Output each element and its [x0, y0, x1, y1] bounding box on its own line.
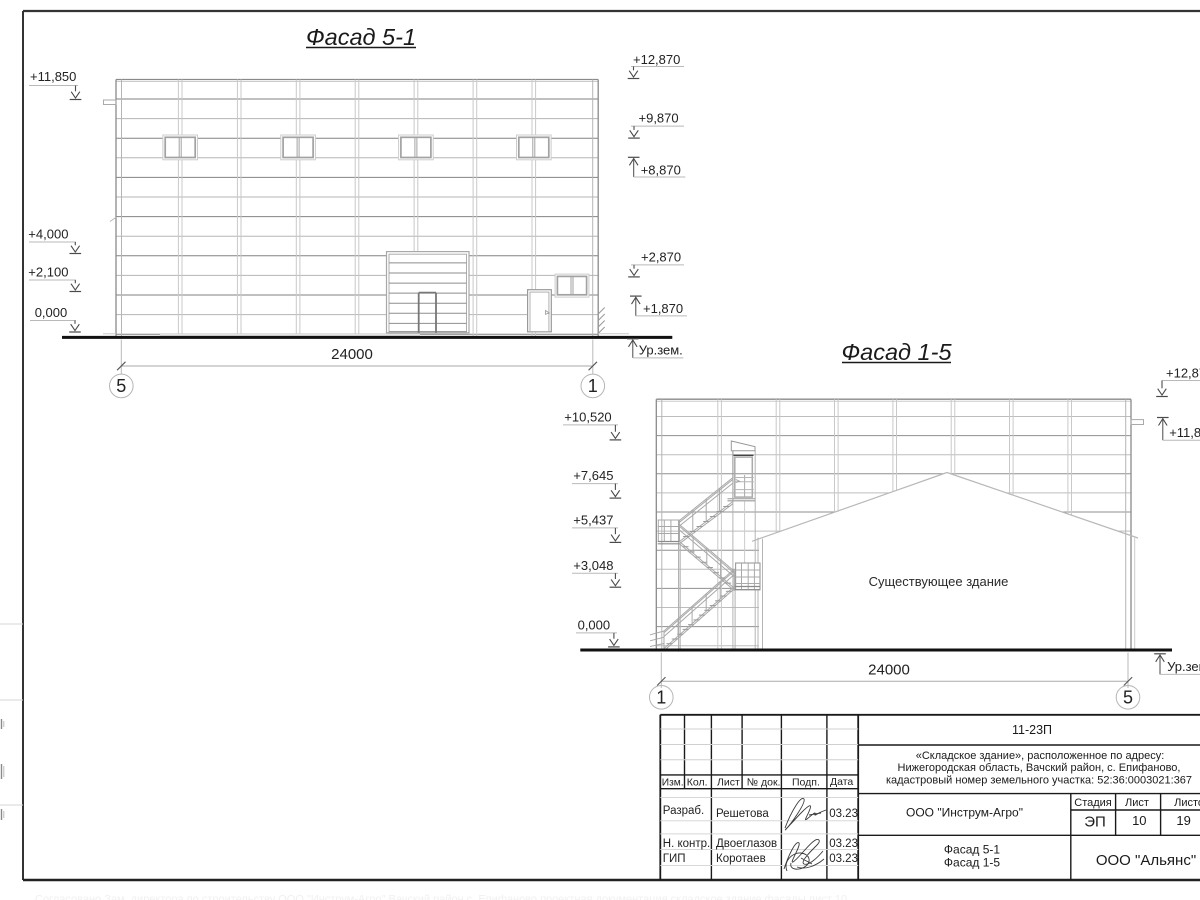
svg-text:+7,645: +7,645 — [573, 468, 613, 483]
svg-text:03.23: 03.23 — [829, 838, 858, 850]
svg-text:ГИП: ГИП — [663, 853, 686, 865]
svg-text:«Складское здание», расположен: «Складское здание», расположенное по адр… — [916, 750, 1165, 762]
svg-text:кадастровый номер земельного у: кадастровый номер земельного участка: 52… — [886, 775, 1192, 787]
svg-text:Коротаев: Коротаев — [716, 853, 766, 865]
svg-text:Стадия: Стадия — [1074, 797, 1112, 809]
svg-text:+4,000: +4,000 — [28, 227, 68, 242]
svg-text:Ур.зем.: Ур.зем. — [1167, 659, 1200, 674]
svg-text:Двоеглазов: Двоеглазов — [716, 838, 777, 850]
svg-text:ООО "Альянс": ООО "Альянс" — [1096, 852, 1196, 869]
svg-text:+2,870: +2,870 — [641, 250, 681, 265]
svg-text:Фасад 5-1: Фасад 5-1 — [944, 843, 1000, 857]
svg-text:+11,850: +11,850 — [30, 69, 76, 84]
svg-text:24000: 24000 — [331, 346, 373, 363]
svg-text:Фасад 5-1: Фасад 5-1 — [306, 24, 416, 50]
svg-text:+2,100: +2,100 — [28, 265, 68, 280]
svg-text:+9,870: +9,870 — [639, 111, 679, 126]
svg-text:0,000: 0,000 — [578, 618, 611, 633]
svg-text:Решетова: Решетова — [716, 808, 769, 820]
svg-text:24000: 24000 — [868, 662, 910, 679]
svg-text:Лист: Лист — [1125, 797, 1149, 809]
svg-text:Кол.: Кол. — [687, 776, 708, 788]
svg-text:Существующее здание: Существующее здание — [869, 574, 1009, 589]
svg-text:Фасад 1-5: Фасад 1-5 — [944, 856, 1000, 870]
svg-text:Подп.: Подп. — [792, 776, 820, 788]
svg-text:03.23: 03.23 — [829, 808, 858, 820]
svg-text:Изм.: Изм. — [662, 777, 684, 788]
svg-text:0,000: 0,000 — [35, 305, 68, 320]
svg-text:11-23П: 11-23П — [1012, 723, 1052, 737]
svg-text:Дата: Дата — [830, 776, 853, 788]
svg-text:+11,850: +11,850 — [1169, 425, 1200, 440]
svg-text:5: 5 — [1123, 688, 1133, 708]
svg-text:Лист: Лист — [717, 776, 740, 788]
svg-text:03.23: 03.23 — [829, 853, 858, 865]
svg-text:+12,870: +12,870 — [1166, 366, 1200, 381]
svg-text:+8,870: +8,870 — [641, 163, 681, 178]
svg-text:Разраб.: Разраб. — [663, 805, 704, 817]
svg-text:Листов: Листов — [1174, 797, 1200, 809]
svg-text:Ур.зем.: Ур.зем. — [639, 343, 683, 358]
svg-text:1: 1 — [588, 376, 598, 396]
svg-text:ЭП: ЭП — [1084, 814, 1106, 831]
svg-text:+5,437: +5,437 — [573, 513, 613, 528]
svg-text:10: 10 — [1132, 813, 1146, 828]
svg-text:+1,870: +1,870 — [643, 301, 683, 316]
svg-text:+10,520: +10,520 — [564, 410, 611, 425]
svg-text:Нижегородская область, Вачский: Нижегородская область, Вачский район, с.… — [898, 762, 1181, 774]
svg-text:+3,048: +3,048 — [573, 558, 613, 573]
svg-text:19: 19 — [1176, 813, 1190, 828]
svg-text:Н. контр.: Н. контр. — [663, 838, 710, 850]
svg-text:+12,870: +12,870 — [633, 52, 680, 67]
svg-text:№ док.: № док. — [747, 776, 781, 788]
svg-text:Фасад 1-5: Фасад 1-5 — [841, 339, 952, 365]
svg-text:ООО "Инструм-Агро": ООО "Инструм-Агро" — [906, 806, 1023, 820]
svg-text:Согласовано Зам. директора п: Согласовано Зам. директора по строительс… — [35, 894, 847, 900]
svg-text:1: 1 — [656, 688, 666, 708]
svg-text:5: 5 — [116, 376, 126, 396]
